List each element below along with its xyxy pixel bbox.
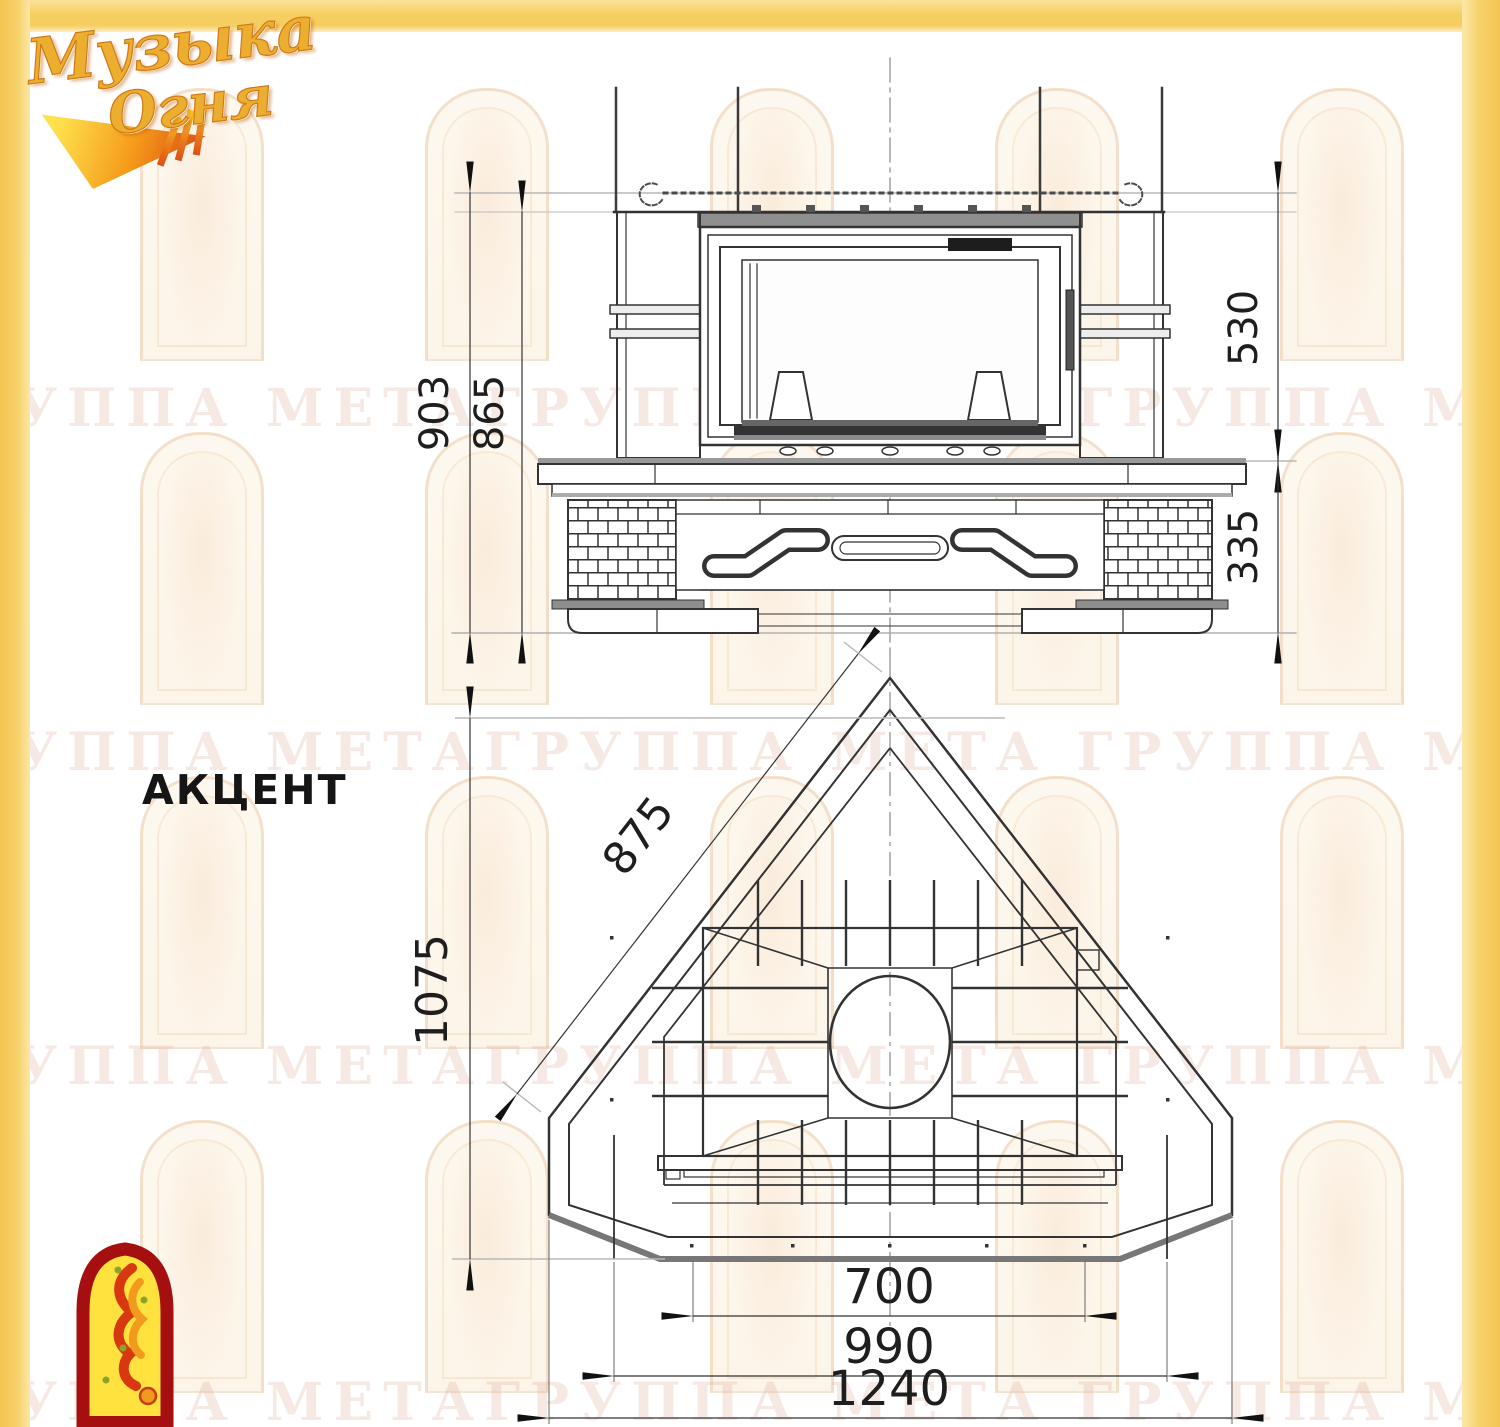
dim-hearth-front-700: 700 [693,1259,1085,1322]
brick-pillar-right [1104,500,1212,600]
brand-plate [948,238,1012,251]
dim-label-335: 335 [1221,509,1267,585]
page-border-right [1462,0,1500,1427]
dim-label-530: 530 [1221,290,1267,366]
dim-label-903: 903 [412,375,458,451]
page: ГРУППА МЕТАГРУППА МЕТА ГРУППА МЕТАГРУППА… [0,0,1500,1427]
dim-opening-height-865: 865 [467,212,522,632]
page-border-left [0,0,30,1427]
mantel-shelf [538,458,1246,497]
plinth-right [1022,609,1212,633]
plan-view: 1075 875 700 990 [407,642,1232,1424]
mantel-top-beam [614,205,1164,227]
front-elevation-view: 903 865 530 335 [412,58,1296,655]
brand-logo: Музыка Огня [4,0,283,196]
right-column [1074,212,1170,458]
model-name-label: АКЦЕНТ [142,766,348,814]
dim-firebox-height-530: 530 [1221,193,1296,461]
arch-flame-emblem [76,1240,174,1427]
vent-holes [780,447,1000,455]
dim-label-1075: 1075 [407,934,458,1046]
left-column [610,212,706,458]
plinth-left [568,609,758,633]
dim-label-875: 875 [593,787,685,885]
firebox-door [700,227,1080,445]
base-section [552,500,1228,633]
mantel-trim-dotted-line [640,183,1143,205]
dim-total-height-903: 903 [412,193,470,632]
brick-pillar-left [568,500,676,600]
dim-label-700: 700 [843,1259,935,1315]
door-handle [1066,290,1074,370]
fireplace-technical-drawing: 903 865 530 335 [0,0,1500,1427]
dim-label-865: 865 [467,375,513,451]
dim-label-1240: 1240 [828,1361,950,1417]
